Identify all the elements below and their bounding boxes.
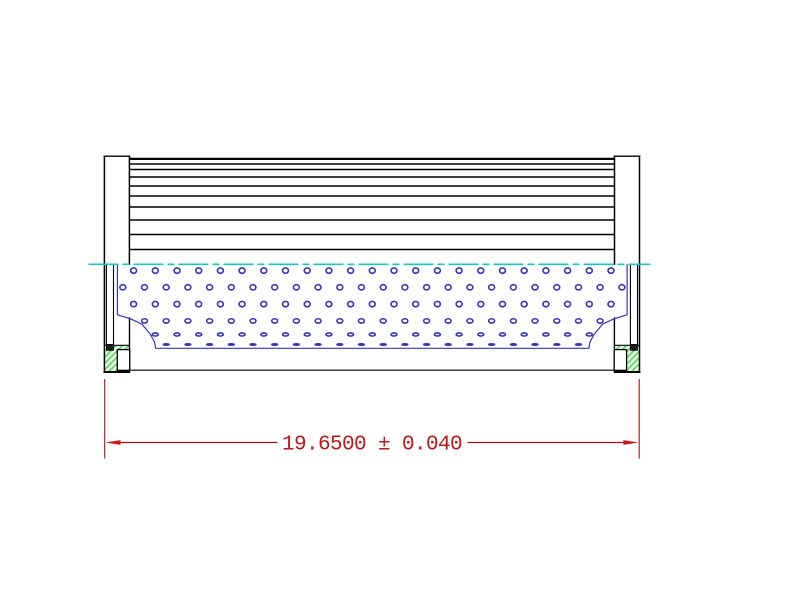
- svg-text:19.6500 ± 0.040: 19.6500 ± 0.040: [282, 434, 462, 457]
